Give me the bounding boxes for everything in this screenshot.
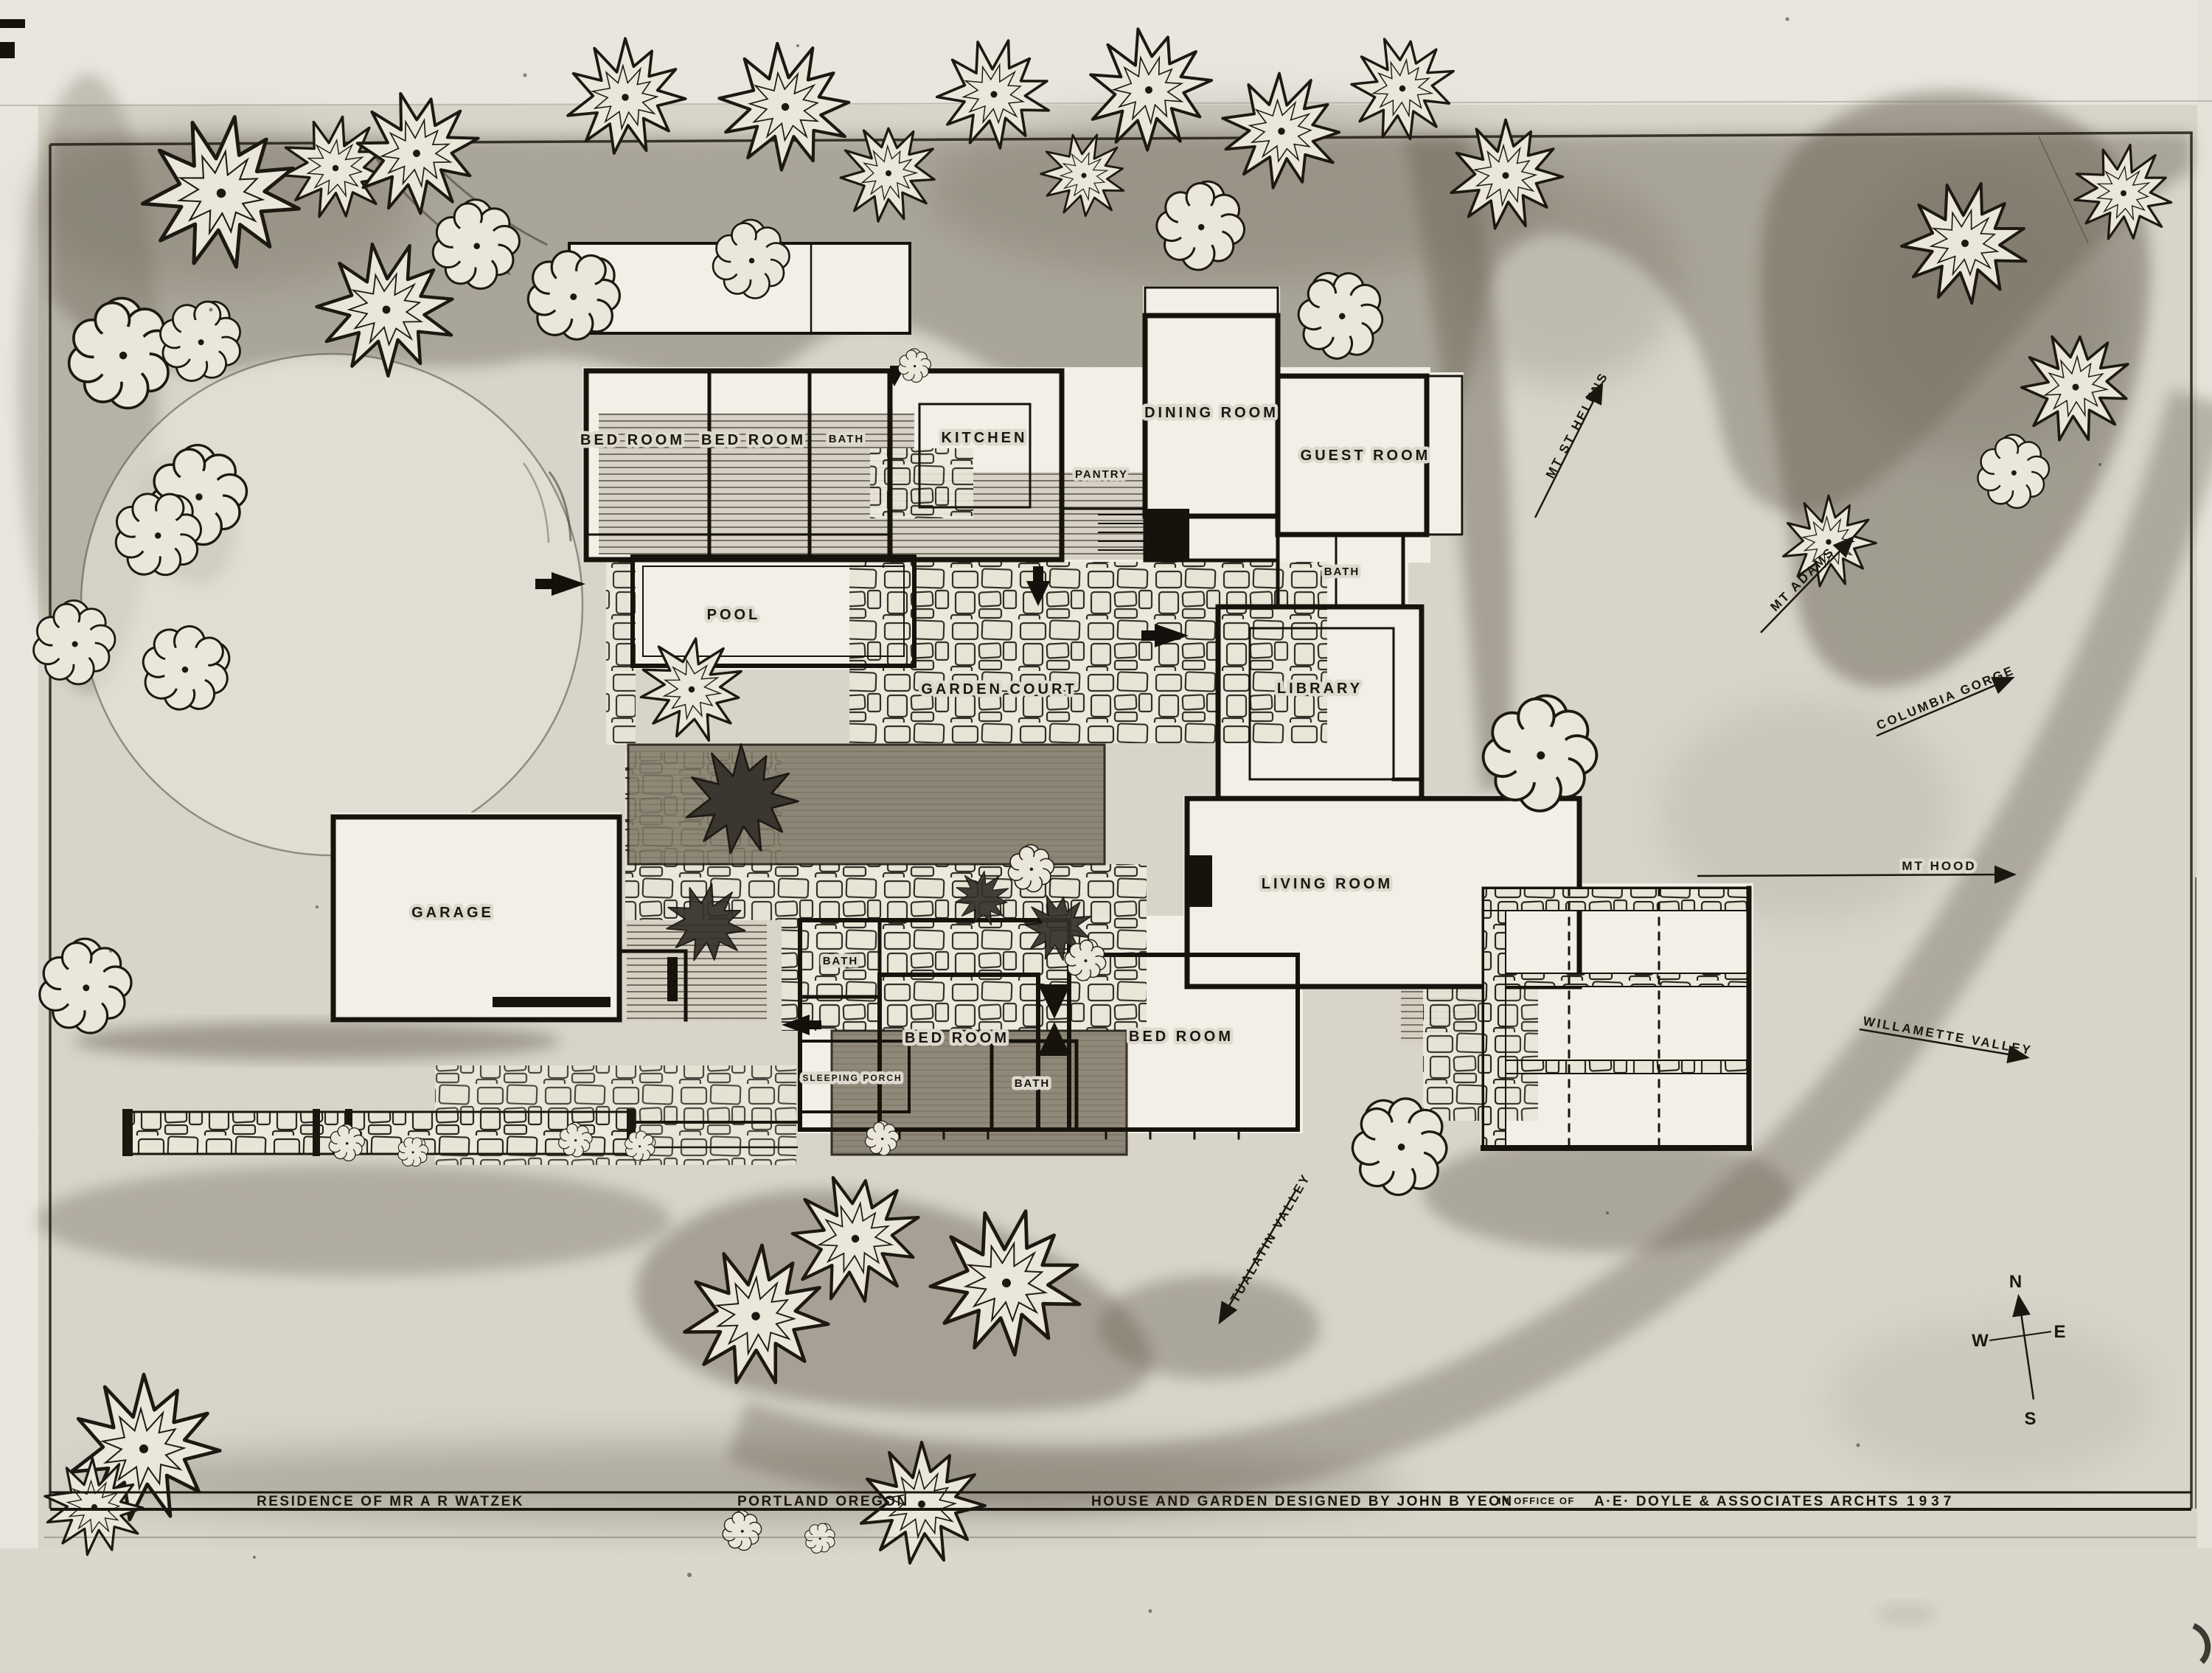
title-residence: RESIDENCE OF MR A R WATZEK bbox=[257, 1494, 524, 1509]
drive-shade bbox=[74, 1022, 560, 1060]
stone-paving bbox=[849, 562, 1327, 743]
view-label-mt-hood: MT HOOD bbox=[1902, 859, 1976, 873]
room-label-kitchen: KITCHEN bbox=[942, 430, 1028, 446]
room-label-garden-court: GARDEN COURT bbox=[921, 681, 1077, 698]
title-office-prefix: IN OFFICE OF bbox=[1498, 1495, 1575, 1506]
title-firm: A·E· DOYLE & ASSOCIATES ARCHTS bbox=[1594, 1494, 1899, 1509]
room-label-sleeping-porch: SLEEPING PORCH bbox=[802, 1073, 902, 1083]
photographed-site-plan: BED ROOM BED ROOM BATH KITCHEN PANTRY DI… bbox=[0, 0, 2212, 1673]
title-year: 1937 bbox=[1907, 1494, 1955, 1509]
compass-north: N bbox=[2009, 1272, 2023, 1292]
title-location: PORTLAND OREGON bbox=[737, 1494, 909, 1509]
room-label-bath-3: BATH bbox=[823, 955, 859, 967]
stair-mass bbox=[1145, 509, 1189, 560]
room-label-bath-4: BATH bbox=[1015, 1077, 1051, 1090]
stone-paving bbox=[1423, 987, 1538, 1121]
room-label-bath-2: BATH bbox=[1324, 566, 1360, 578]
room-label-dining-room: DINING ROOM bbox=[1144, 405, 1279, 421]
room-label-pantry: PANTRY bbox=[1075, 468, 1128, 481]
compass-west: W bbox=[1972, 1331, 1989, 1351]
room-label-library: LIBRARY bbox=[1277, 681, 1363, 697]
room-label-pool: POOL bbox=[707, 607, 761, 623]
room-label-bed-room-1: BED ROOM bbox=[580, 432, 685, 448]
room-label-bed-room-3: BED ROOM bbox=[905, 1030, 1009, 1046]
site-plan-drawing: BED ROOM BED ROOM BATH KITCHEN PANTRY DI… bbox=[0, 0, 2212, 1673]
compass-south: S bbox=[2024, 1409, 2037, 1429]
room-label-living-room: LIVING ROOM bbox=[1262, 876, 1393, 892]
room-label-guest-room: GUEST ROOM bbox=[1301, 448, 1431, 464]
room-label-bed-room-2: BED ROOM bbox=[701, 432, 806, 448]
room-label-garage: GARAGE bbox=[411, 905, 494, 921]
fireplace-mass bbox=[1187, 855, 1212, 907]
compass-east: E bbox=[2053, 1322, 2066, 1342]
room-label-bath-1: BATH bbox=[829, 433, 865, 445]
title-credit: HOUSE AND GARDEN DESIGNED BY JOHN B YEON bbox=[1091, 1494, 1514, 1509]
room-label-bed-room-4: BED ROOM bbox=[1129, 1029, 1234, 1045]
